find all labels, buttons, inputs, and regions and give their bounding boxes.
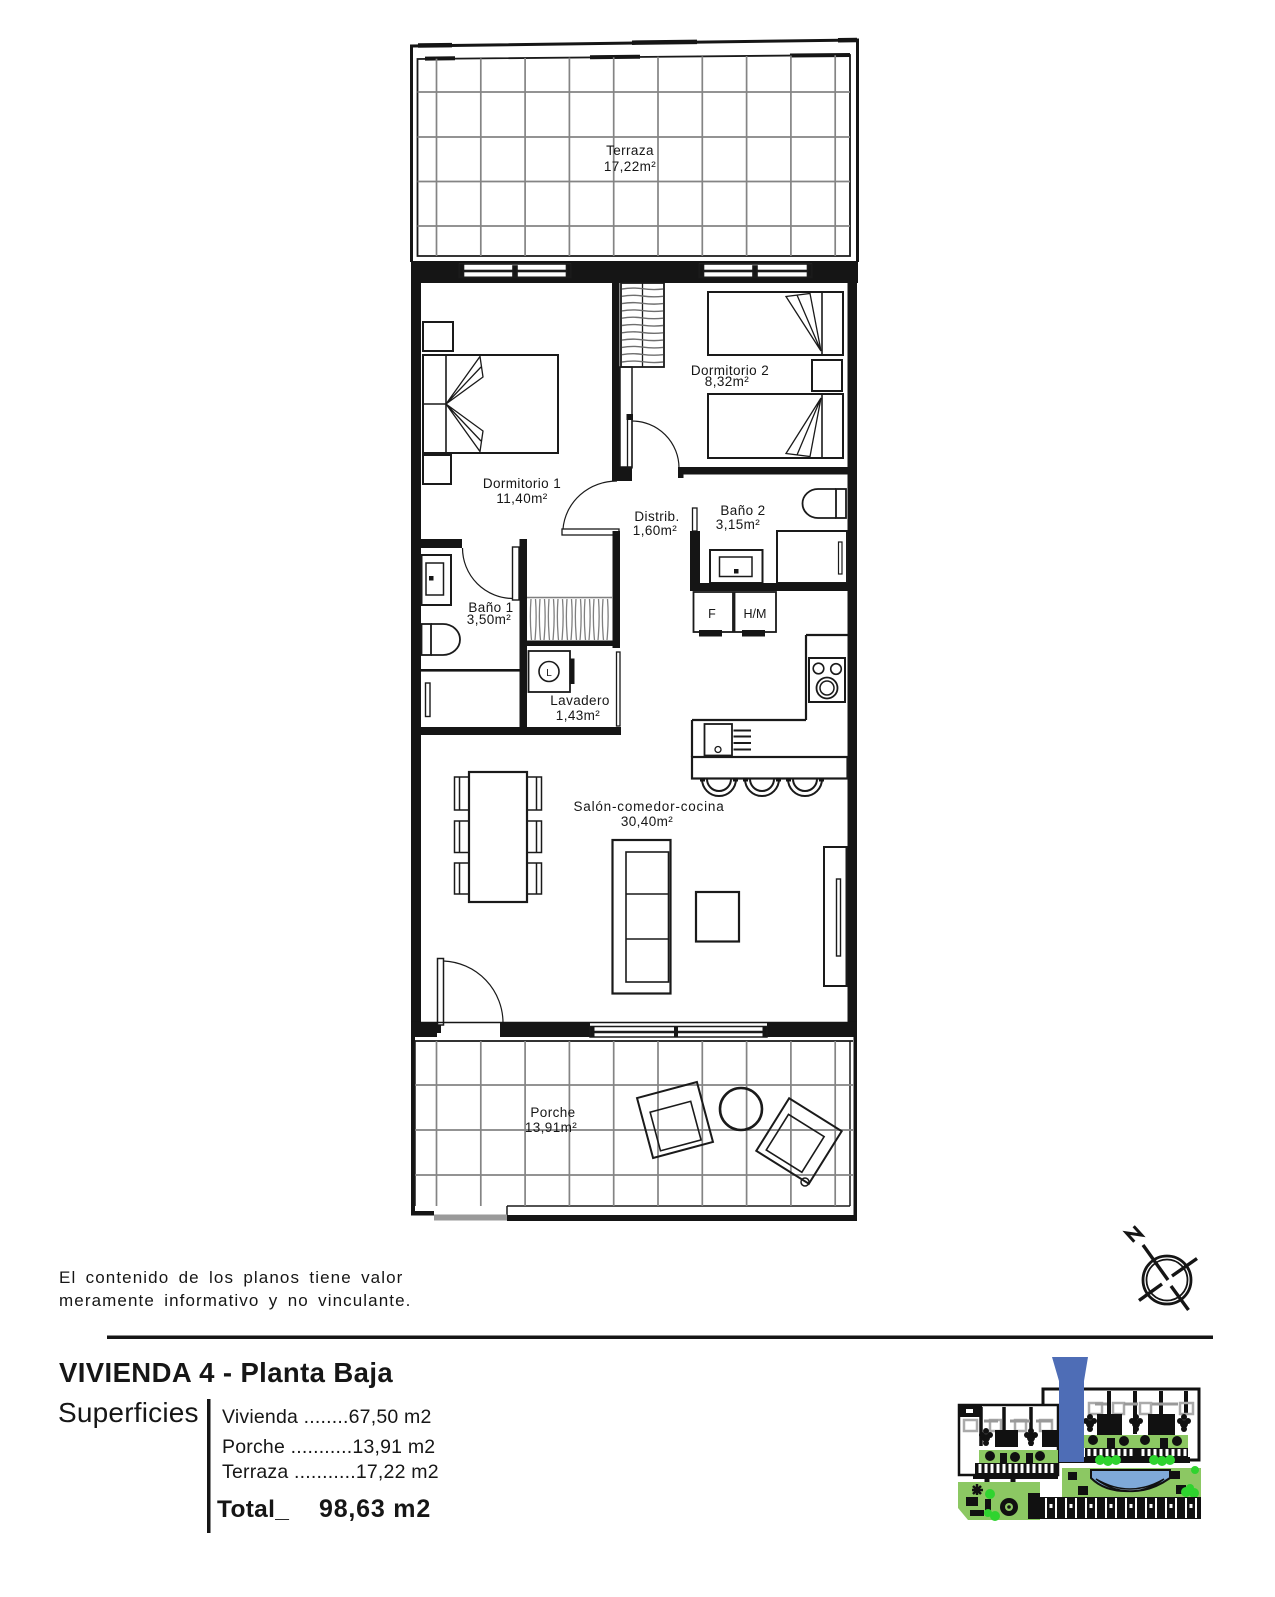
svg-text:H/M: H/M: [744, 607, 767, 621]
svg-text:1,60m²: 1,60m²: [633, 523, 678, 538]
svg-text:Porche: Porche: [530, 1105, 575, 1120]
svg-text:Baño 2: Baño 2: [720, 503, 765, 518]
svg-text:Vivienda ........67,50 m2: Vivienda ........67,50 m2: [222, 1406, 432, 1428]
svg-text:Porche ...........13,91 m2: Porche ...........13,91 m2: [222, 1436, 435, 1458]
svg-text:98,63 m2: 98,63 m2: [319, 1495, 431, 1523]
svg-text:Total_: Total_: [217, 1496, 289, 1523]
svg-text:3,50m²: 3,50m²: [467, 612, 512, 627]
svg-text:Terraza: Terraza: [606, 143, 654, 158]
svg-text:11,40m²: 11,40m²: [496, 491, 547, 506]
svg-text:Superficies: Superficies: [58, 1397, 199, 1428]
svg-text:30,40m²: 30,40m²: [621, 814, 673, 829]
svg-text:Salón-comedor-cocina: Salón-comedor-cocina: [573, 799, 724, 814]
svg-text:Distrib.: Distrib.: [634, 509, 679, 524]
svg-text:17,22m²: 17,22m²: [604, 159, 656, 174]
svg-text:3,15m²: 3,15m²: [716, 517, 761, 532]
svg-text:L: L: [546, 668, 552, 679]
svg-text:VIVIENDA 4 - Planta Baja: VIVIENDA 4 - Planta Baja: [59, 1357, 393, 1388]
svg-text:F: F: [708, 607, 716, 621]
svg-text:Dormitorio 1: Dormitorio 1: [483, 476, 561, 491]
svg-text:8,32m²: 8,32m²: [705, 374, 750, 389]
svg-text:13,91m²: 13,91m²: [525, 1120, 577, 1135]
svg-text:Terraza ...........17,22 m2: Terraza ...........17,22 m2: [222, 1461, 439, 1483]
svg-text:meramente informativo y no vin: meramente informativo y no vinculante.: [59, 1291, 412, 1310]
svg-text:Lavadero: Lavadero: [550, 693, 610, 708]
svg-text:1,43m²: 1,43m²: [556, 708, 601, 723]
svg-text:El contenido de los planos tie: El contenido de los planos tiene valor: [59, 1268, 403, 1287]
